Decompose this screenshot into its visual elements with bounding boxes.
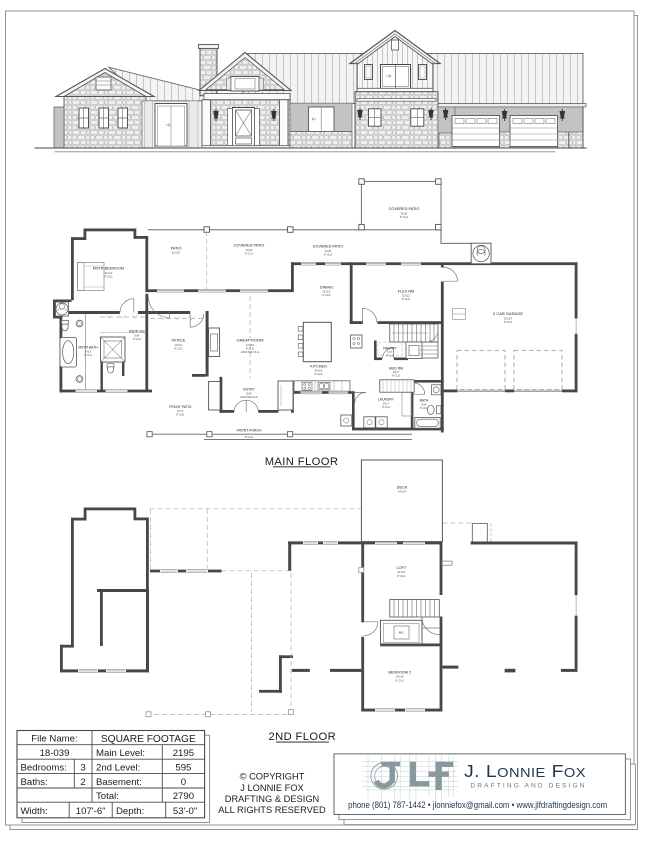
svg-text:9' CLG: 9' CLG [322,293,330,297]
svg-text:© COPYRIGHT: © COPYRIGHT [240,772,305,782]
svg-text:Depth:: Depth: [116,806,144,817]
svg-text:SQUARE FOOTAGE: SQUARE FOOTAGE [101,734,196,745]
svg-text:DECK: DECK [397,486,408,490]
svg-text:FLEX RM: FLEX RM [398,290,414,294]
svg-text:9'x13': 9'x13' [85,349,92,353]
svg-text:14'x14': 14'x14' [396,675,405,679]
svg-text:14'x14': 14'x14' [104,271,113,275]
svg-text:9' CLG: 9' CLG [420,406,428,410]
svg-text:ALL RIGHTS RESERVED: ALL RIGHTS RESERVED [218,805,326,815]
svg-text:107'-6": 107'-6" [76,806,106,817]
svg-text:DINING: DINING [320,286,333,290]
svg-text:2ND FLOOR: 2ND FLOOR [268,731,336,743]
svg-text:5'x8': 5'x8' [134,333,140,337]
svg-text:18-039: 18-039 [40,748,70,759]
svg-text:6'x9': 6'x9' [421,402,427,406]
svg-text:9' CLG: 9' CLG [84,353,92,357]
svg-text:8' CLG: 8' CLG [176,412,184,416]
svg-text:PANTRY: PANTRY [383,347,397,351]
svg-text:14'x8': 14'x8' [401,211,408,215]
svg-text:9' CLG: 9' CLG [382,405,390,409]
svg-text:14'x14': 14'x14' [398,490,407,494]
svg-text:Total:: Total: [96,791,119,802]
svg-text:BEDROOM 2: BEDROOM 2 [388,671,411,675]
svg-text:14'x14': 14'x14' [397,570,406,574]
svg-text:53'-0": 53'-0" [173,806,197,817]
svg-text:9' CLG: 9' CLG [504,320,512,324]
svg-text:COVERED PATIO: COVERED PATIO [313,245,344,249]
svg-text:2 CAR GARAGE: 2 CAR GARAGE [493,311,523,316]
svg-text:LAUNDRY: LAUNDRY [378,398,395,402]
svg-text:File Name:: File Name: [31,734,77,745]
svg-text:9' CLG: 9' CLG [402,297,410,301]
svg-text:Width:: Width: [21,806,48,817]
svg-text:VAULTED CLG: VAULTED CLG [241,350,259,354]
svg-text:12'x7': 12'x7' [177,409,184,413]
svg-text:14'x8': 14'x8' [246,248,253,252]
svg-text:12'x12': 12'x12' [322,290,331,294]
svg-text:10'x7': 10'x7' [383,401,390,405]
svg-text:FRONT PORCH: FRONT PORCH [237,429,262,433]
svg-text:2nd Level:: 2nd Level: [96,762,140,773]
svg-text:14'x8': 14'x8' [325,249,332,253]
svg-text:J LONNIE FOX: J LONNIE FOX [240,783,304,793]
svg-text:phone (801) 787-1442 • jlonnie: phone (801) 787-1442 • jlonniefox@gmail.… [348,800,607,810]
svg-text:3: 3 [80,762,85,773]
svg-text:23'x23': 23'x23' [504,316,513,320]
svg-text:COVERED PATIO: COVERED PATIO [234,244,265,248]
svg-text:8' CLG: 8' CLG [397,574,405,578]
svg-text:Baths:: Baths: [21,777,48,788]
svg-text:DRAFTING AND DESIGN: DRAFTING AND DESIGN [470,783,586,790]
svg-text:OFFICE: OFFICE [171,339,185,343]
svg-text:MUD RM: MUD RM [389,367,403,371]
svg-text:0: 0 [181,777,186,788]
svg-text:M/C: M/C [399,631,404,635]
svg-text:Bedrooms:: Bedrooms: [21,762,67,773]
svg-text:9' CLG: 9' CLG [133,337,141,341]
svg-text:14'x16': 14'x16' [314,369,323,373]
svg-text:5'x7': 5'x7' [387,350,393,354]
svg-text:MSTR WC: MSTR WC [129,330,146,334]
svg-text:2195: 2195 [173,748,194,759]
svg-text:12'x13': 12'x13' [172,251,181,255]
svg-text:9' CLG: 9' CLG [386,354,394,358]
svg-text:17'x20': 17'x20' [246,343,255,347]
svg-text:BATH: BATH [420,399,429,403]
svg-text:9' CLG: 9' CLG [246,347,254,351]
svg-text:MSTR BEDROOM: MSTR BEDROOM [93,267,124,271]
svg-text:VAULTED CLG: VAULTED CLG [240,395,258,399]
svg-text:8' CLG: 8' CLG [396,678,404,682]
svg-text:9'x9': 9'x9' [246,391,252,395]
svg-text:Main Level:: Main Level: [96,748,145,759]
svg-text:Basement:: Basement: [96,777,142,788]
svg-text:8' CLG: 8' CLG [245,435,253,439]
svg-text:COVERED PATIO: COVERED PATIO [389,207,420,211]
svg-text:PATIO: PATIO [171,247,182,251]
svg-text:9' CLG: 9' CLG [104,274,112,278]
svg-text:9' CLG: 9' CLG [314,372,322,376]
svg-text:9' CLG: 9' CLG [392,374,400,378]
svg-text:10'x7': 10'x7' [393,370,400,374]
svg-text:595: 595 [175,762,191,773]
svg-text:11'x11': 11'x11' [174,343,182,347]
svg-text:KITCHEN: KITCHEN [310,365,327,369]
svg-text:9' CLG: 9' CLG [400,215,408,219]
svg-text:MSTR BATH: MSTR BATH [78,346,98,350]
svg-text:LOFT: LOFT [397,566,407,570]
svg-text:FRONT PATIO: FRONT PATIO [169,405,192,409]
svg-text:2: 2 [80,777,85,788]
svg-text:DRAFTING & DESIGN: DRAFTING & DESIGN [225,794,320,804]
svg-text:GREAT ROOM: GREAT ROOM [237,338,264,343]
svg-text:9' CLG: 9' CLG [174,346,182,350]
svg-text:12'x12': 12'x12' [402,294,411,298]
svg-text:ENTRY: ENTRY [243,388,255,392]
svg-text:9' CLG: 9' CLG [324,252,332,256]
svg-text:MAIN FLOOR: MAIN FLOOR [265,456,339,468]
svg-text:2790: 2790 [173,791,194,802]
svg-text:9' CLG: 9' CLG [245,251,253,255]
